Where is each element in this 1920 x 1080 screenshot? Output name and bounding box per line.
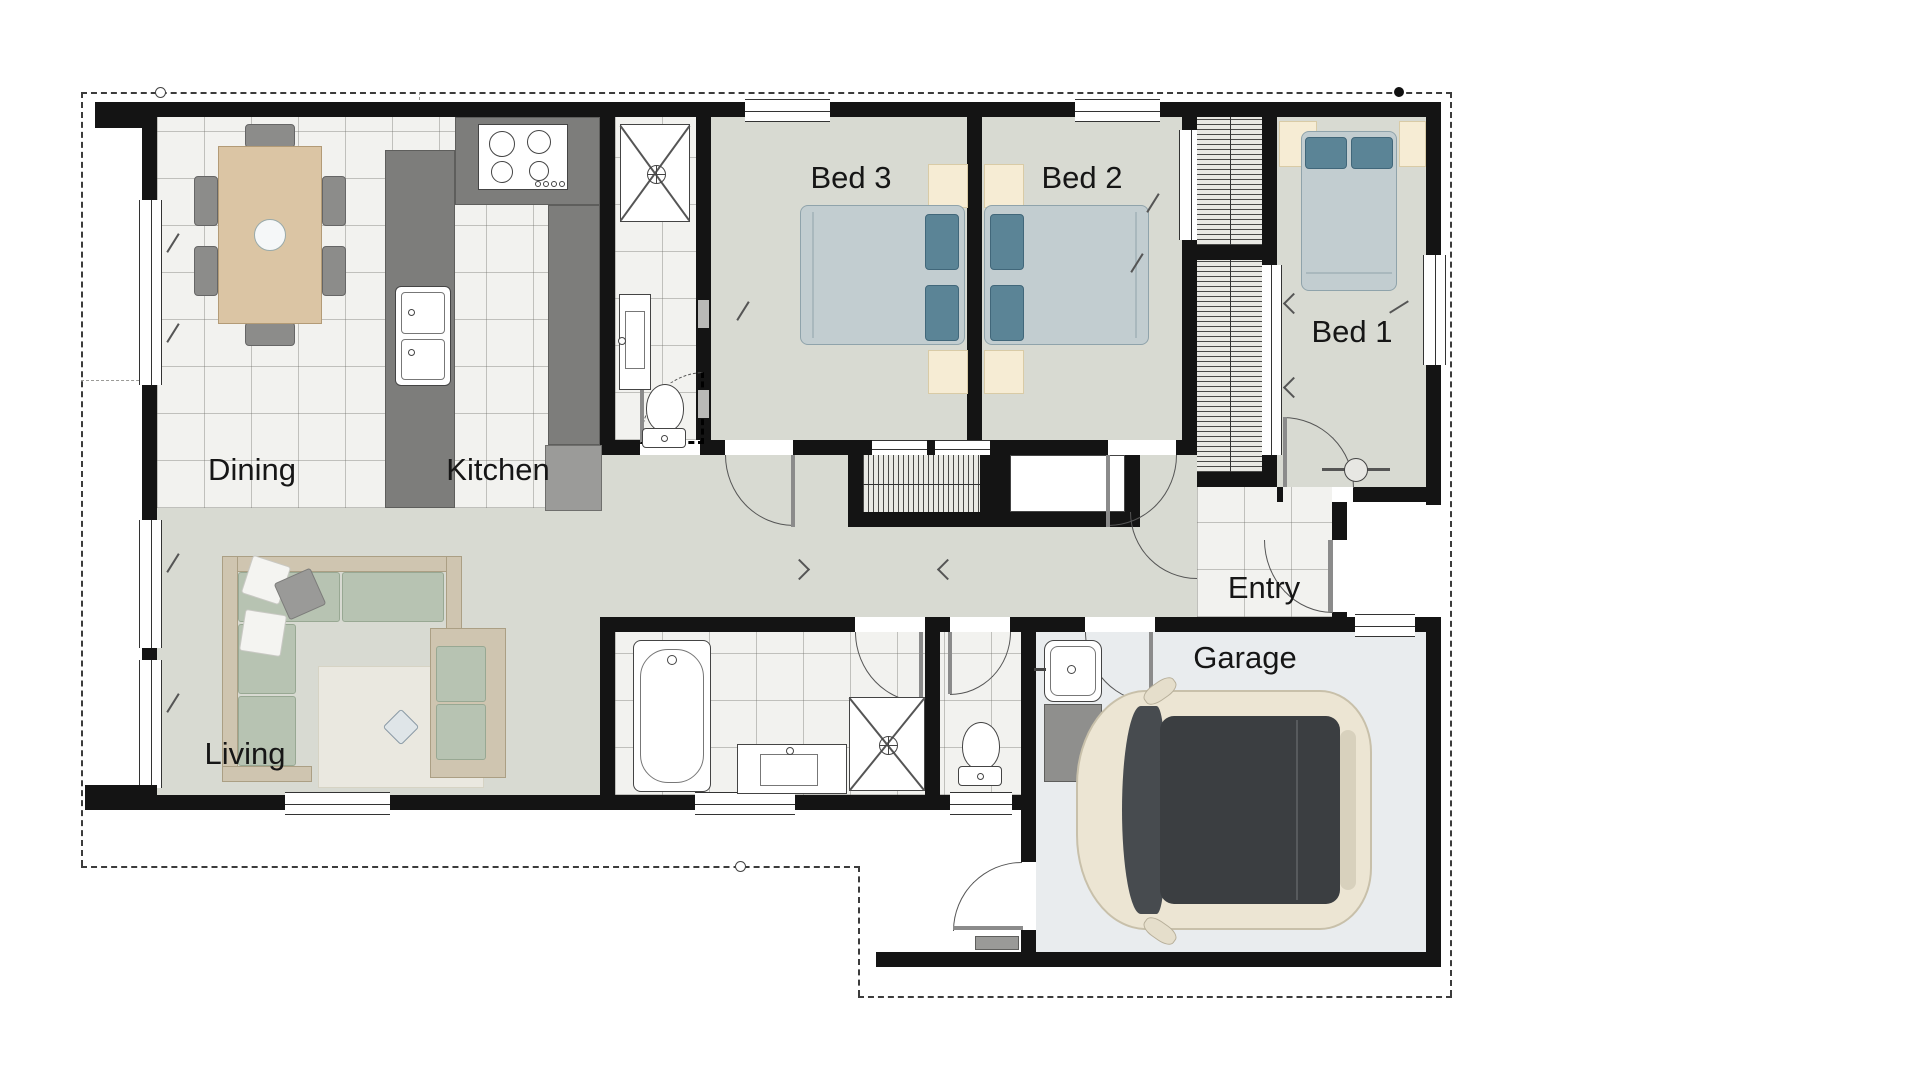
garage-side-door-arc xyxy=(953,862,1022,931)
boundary-marker-icon xyxy=(155,87,166,98)
tap-icon xyxy=(408,309,415,316)
site-boundary-step xyxy=(858,866,860,996)
ensuite-vanity xyxy=(619,294,651,390)
rug-ornament xyxy=(383,709,420,746)
wall-bedrooms-south xyxy=(615,440,640,455)
wall-entry-east xyxy=(1332,502,1347,540)
laundry-tap-spout xyxy=(1034,668,1046,671)
front-door-leaf xyxy=(1328,540,1333,612)
flush-icon xyxy=(977,773,984,780)
dining-chair xyxy=(245,322,295,346)
bed2-pillow xyxy=(990,214,1024,270)
site-boundary-top xyxy=(81,92,1452,94)
burner-icon xyxy=(489,131,515,157)
tap-icon xyxy=(618,337,626,345)
hall-floor-junction xyxy=(600,455,615,617)
site-boundary-bottom-right xyxy=(858,996,1452,998)
wall-garage-west xyxy=(1021,632,1036,862)
dining-window xyxy=(139,200,162,385)
sofa-arm-right xyxy=(446,556,462,634)
bed1-pillow xyxy=(1351,137,1393,169)
bed1-wardrobe-hatch xyxy=(1197,260,1262,472)
burner-icon xyxy=(529,161,549,181)
bed1-door-leaf xyxy=(1283,417,1287,487)
living-window-south xyxy=(285,792,390,815)
boundary-peg-icon xyxy=(1394,87,1404,97)
wc-door-leaf xyxy=(948,632,952,694)
knob-icon xyxy=(551,181,557,187)
ensuite-shower xyxy=(620,124,690,222)
bed3-fold-line xyxy=(812,212,814,338)
boundary-marker-icon xyxy=(735,861,746,872)
bed3-door-leaf xyxy=(791,455,795,527)
cavity-door-jamb xyxy=(698,390,709,418)
garage-window xyxy=(1355,614,1415,637)
wall-garage-east xyxy=(1426,617,1441,967)
shower xyxy=(849,697,925,791)
living-window-lower xyxy=(139,660,162,788)
room-label-living: Living xyxy=(205,736,286,772)
dining-plate-icon xyxy=(254,219,286,251)
cavity-door-jamb xyxy=(698,300,709,328)
hall-wardrobe-hatch xyxy=(863,455,980,512)
room-label-entry: Entry xyxy=(1228,570,1300,606)
bed2-fold-line xyxy=(1135,212,1137,338)
dining-chair xyxy=(322,176,346,226)
wall-bath-wc xyxy=(925,632,940,795)
bed1-fold-line xyxy=(1306,272,1392,274)
wall-right-bed1 xyxy=(1426,365,1441,505)
cooktop xyxy=(478,124,568,190)
wall-bottom xyxy=(795,795,950,810)
bed1-window xyxy=(1423,255,1446,365)
car xyxy=(1076,690,1372,930)
dining-chair xyxy=(194,246,218,296)
bathtub xyxy=(633,640,711,792)
bed3-window xyxy=(745,99,830,122)
wall-bedrooms-south xyxy=(927,440,935,455)
tap-icon xyxy=(1067,665,1076,674)
kitchen-counter-east xyxy=(548,205,600,445)
knob-icon xyxy=(559,181,565,187)
ensuite-toilet-cistern xyxy=(642,428,686,448)
armchair-cushion xyxy=(436,704,486,760)
bed3-bedside-table xyxy=(928,164,968,208)
room-label-dining: Dining xyxy=(208,452,296,488)
throw-pillow xyxy=(239,609,287,657)
wall-bed1-south xyxy=(1353,487,1426,502)
wc-toilet-cistern xyxy=(958,766,1002,786)
wall-bed2-robe xyxy=(1182,117,1197,130)
wall-bed1-south xyxy=(1277,487,1283,502)
wall-bed3-bed2 xyxy=(967,117,982,440)
wall-robe-bottom xyxy=(1197,472,1277,487)
wall-left xyxy=(142,385,157,520)
wall-garage-south xyxy=(876,952,1441,967)
basin xyxy=(760,754,818,786)
sofa-cushion xyxy=(342,572,444,622)
wall-hall-robe xyxy=(980,455,1010,512)
basin xyxy=(625,311,645,369)
bed2-bedside-table xyxy=(984,350,1024,394)
wall-hall-robe-bottom xyxy=(848,512,1140,527)
knob-icon xyxy=(535,181,541,187)
wall-robe-divider xyxy=(1197,245,1277,260)
bed2-door-leaf xyxy=(1106,455,1110,527)
drain-icon xyxy=(879,736,898,755)
dining-chair xyxy=(322,246,346,296)
wall-hall-robe xyxy=(848,455,863,512)
wall-robe-bed1 xyxy=(1262,117,1277,265)
room-label-kitchen: Kitchen xyxy=(446,452,549,488)
room-label-bed3: Bed 3 xyxy=(810,160,891,196)
dining-chair xyxy=(194,176,218,226)
burner-icon xyxy=(491,161,513,183)
room-label-bed2: Bed 2 xyxy=(1041,160,1122,196)
wall-bath-north xyxy=(925,617,950,632)
room-label-bed1: Bed 1 xyxy=(1311,314,1392,350)
drain-icon xyxy=(647,165,666,184)
room-label-garage: Garage xyxy=(1193,640,1296,676)
wall-garage-west xyxy=(1021,930,1036,952)
bed1-robe-sliding-door xyxy=(1259,265,1282,455)
bathtub-inner xyxy=(640,649,704,783)
bed1-pillow xyxy=(1305,137,1347,169)
wall-bedrooms-south xyxy=(793,440,872,455)
wall-left xyxy=(142,648,157,660)
site-boundary-left xyxy=(81,92,83,866)
ensuite-toilet-bowl xyxy=(646,384,684,432)
car-roof-seam xyxy=(1296,720,1298,900)
bed3-bedside-table xyxy=(928,350,968,394)
site-boundary-right xyxy=(1450,92,1452,996)
refrigerator xyxy=(545,445,602,511)
bed2-wardrobe-hatch xyxy=(1197,117,1262,245)
wall-garage-north xyxy=(1155,617,1355,632)
wall-bath-north xyxy=(600,617,855,632)
flush-icon xyxy=(661,435,668,442)
wall-bedrooms-south xyxy=(1176,440,1197,455)
knob-icon xyxy=(543,181,549,187)
bed2-pillow xyxy=(990,285,1024,341)
wc-window xyxy=(950,792,1012,815)
floor-plan: Dining Kitchen Living Bed 3 Bed 2 Bed 1 … xyxy=(0,0,1920,1080)
wall-kitchen-ensuite xyxy=(600,117,615,455)
sink-basin xyxy=(401,339,445,380)
bed1-side-table-top xyxy=(1344,458,1368,482)
garage-side-door-leaf xyxy=(953,926,1023,930)
bath-vanity xyxy=(737,744,847,794)
dining-chair xyxy=(245,124,295,148)
bed1-bedside-table xyxy=(1399,121,1426,167)
garage-door-step xyxy=(975,936,1019,950)
tap-icon xyxy=(667,655,677,665)
car-windshield xyxy=(1122,706,1164,914)
wall-bedrooms-south xyxy=(990,440,1108,455)
wall-garage-north xyxy=(1415,617,1426,632)
car-roof xyxy=(1160,716,1340,904)
wall-left xyxy=(142,117,157,200)
tap-icon xyxy=(786,747,794,755)
island-sink xyxy=(395,286,451,386)
wall-bath-west xyxy=(600,617,615,795)
tap-icon xyxy=(408,349,415,356)
wall-bottom xyxy=(142,795,285,810)
wall-bed2-robe xyxy=(1182,240,1197,455)
wall-bottom xyxy=(390,795,695,810)
car-rear-window xyxy=(1340,730,1356,890)
burner-icon xyxy=(527,130,551,154)
bed2-bedside-table xyxy=(984,164,1024,208)
wc-toilet-bowl xyxy=(962,722,1000,770)
armchair-cushion xyxy=(436,646,486,702)
bathroom-window xyxy=(695,792,795,815)
wall-right-bed1 xyxy=(1426,102,1441,255)
bathroom-door-leaf xyxy=(919,632,923,704)
bed2-window xyxy=(1075,99,1160,122)
bed3-pillow xyxy=(925,214,959,270)
wall-bath-north xyxy=(1010,617,1036,632)
bed3-pillow xyxy=(925,285,959,341)
wall-garage-north xyxy=(1036,617,1085,632)
living-window-upper xyxy=(139,520,162,648)
